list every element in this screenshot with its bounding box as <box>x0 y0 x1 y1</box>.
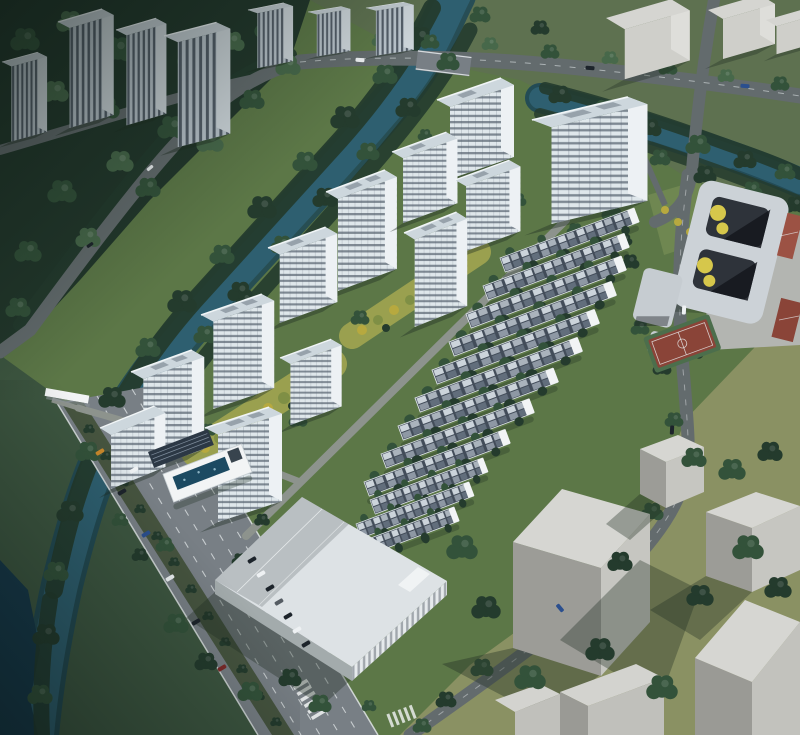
car <box>740 84 749 89</box>
aerial-render <box>0 0 800 735</box>
car <box>670 425 674 434</box>
car <box>585 66 594 71</box>
car <box>682 305 686 314</box>
render-canvas <box>0 0 800 735</box>
